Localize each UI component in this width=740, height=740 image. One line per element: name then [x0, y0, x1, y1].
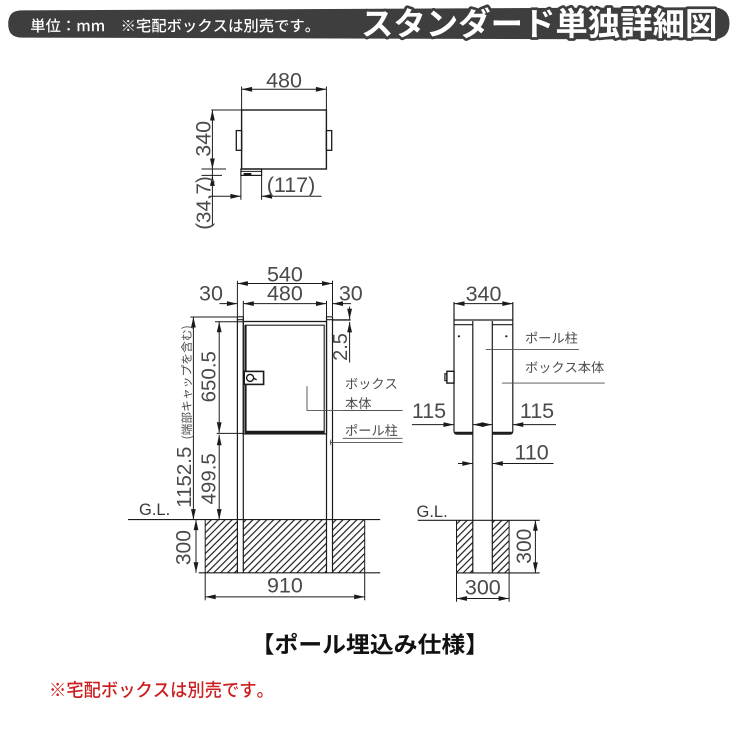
svg-text:340: 340 [192, 121, 216, 157]
svg-text:(34.7): (34.7) [193, 176, 216, 230]
svg-text:30: 30 [199, 281, 223, 305]
svg-text:2.5: 2.5 [330, 333, 352, 361]
svg-text:910: 910 [267, 574, 303, 598]
svg-text:480: 480 [266, 68, 302, 92]
svg-text:115: 115 [520, 399, 554, 423]
svg-text:1152.5: 1152.5 [173, 447, 196, 508]
svg-text:340: 340 [466, 282, 502, 306]
svg-text:300: 300 [513, 529, 536, 564]
svg-text:30: 30 [339, 281, 363, 305]
svg-text:110: 110 [514, 441, 548, 465]
svg-text:115: 115 [412, 399, 446, 423]
svg-text:300: 300 [173, 530, 196, 565]
svg-text:300: 300 [465, 576, 501, 600]
svg-text:(117): (117) [267, 173, 316, 197]
svg-text:480: 480 [267, 281, 303, 305]
svg-text:G.L.: G.L. [417, 503, 448, 521]
svg-text:G.L.: G.L. [139, 501, 170, 519]
svg-text:499.5: 499.5 [198, 453, 221, 504]
svg-text:650.5: 650.5 [198, 351, 221, 402]
